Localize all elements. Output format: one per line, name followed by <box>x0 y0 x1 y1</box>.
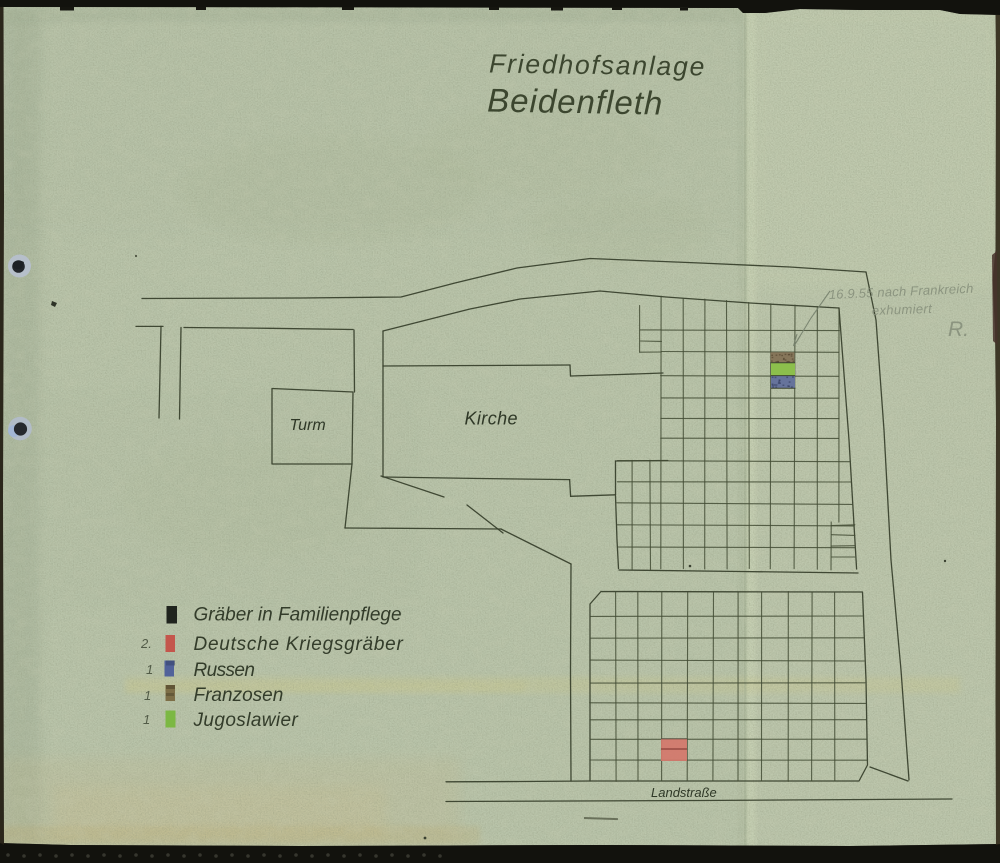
svg-text:1: 1 <box>146 662 153 677</box>
svg-text:Gräber in Familienpflege: Gräber in Familienpflege <box>194 605 402 626</box>
svg-text:Franzosen: Franzosen <box>194 685 284 706</box>
svg-text:Turm: Turm <box>290 417 326 434</box>
svg-text:Jugoslawier: Jugoslawier <box>193 710 299 731</box>
svg-text:1: 1 <box>143 712 150 727</box>
svg-text:Kirche: Kirche <box>465 409 518 429</box>
svg-text:2.: 2. <box>140 636 152 651</box>
svg-text:Beidenfleth: Beidenfleth <box>487 82 664 122</box>
svg-text:exhumiert: exhumiert <box>872 301 934 318</box>
svg-text:Friedhofsanlage: Friedhofsanlage <box>489 49 706 82</box>
svg-text:Landstraße: Landstraße <box>651 785 717 800</box>
svg-text:Russen: Russen <box>194 660 255 681</box>
svg-text:R.: R. <box>948 318 969 341</box>
svg-text:1: 1 <box>144 688 151 703</box>
svg-text:Deutsche Kriegsgräber: Deutsche Kriegsgräber <box>194 634 404 655</box>
